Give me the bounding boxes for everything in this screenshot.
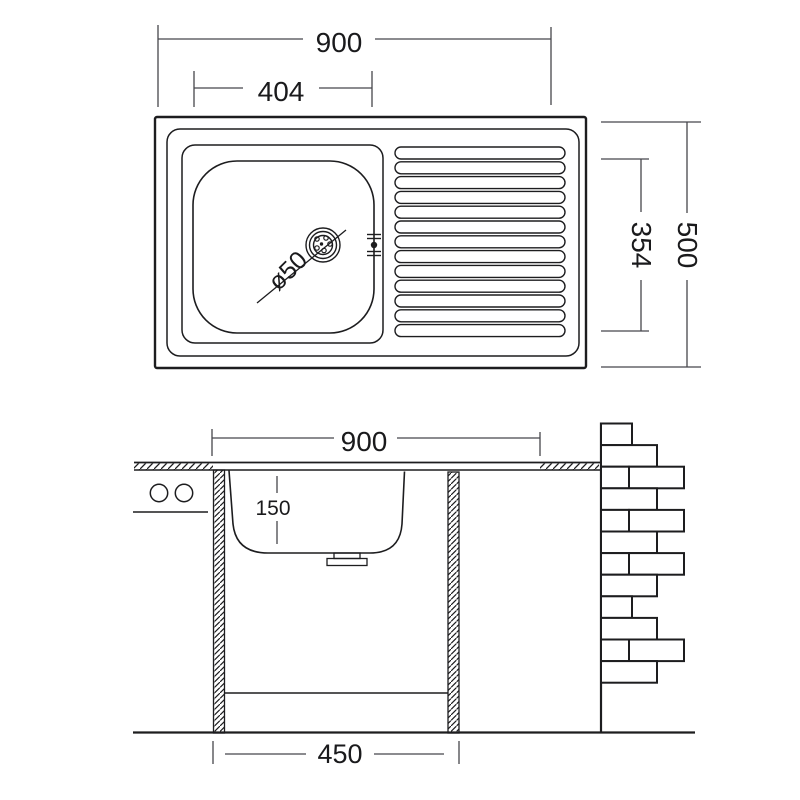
drain-outer-circle (306, 228, 340, 262)
drain (306, 228, 340, 262)
drainboard-ridge (395, 162, 565, 174)
cabinet-wall-left (214, 470, 225, 733)
drainboard-ridge (395, 147, 565, 159)
brick (601, 661, 657, 683)
drainboard-ridge (395, 177, 565, 189)
dim-total-width-bottom: 900 (212, 426, 540, 457)
dim-label-total-depth: 500 (672, 222, 703, 269)
drain-fitting-flange (327, 559, 367, 566)
drain-fitting-neck (334, 553, 360, 559)
drainboard-ridge (395, 325, 565, 337)
bowl-inner (193, 161, 374, 333)
dim-total-width-top: 900 (158, 25, 551, 107)
brick (601, 445, 657, 467)
drain-center-dot (320, 242, 323, 245)
brick (601, 596, 632, 618)
drainboard-ridge (395, 236, 565, 248)
drainboard-ridge (395, 295, 565, 307)
brick (629, 640, 684, 662)
dim-bowl-depth-right: 354 (601, 159, 657, 331)
dim-label-bowl-width: 404 (258, 76, 305, 107)
brick-wall-bricks (601, 424, 684, 683)
drainboard-ridge (395, 265, 565, 277)
countertop-hatch-right (540, 464, 599, 471)
bowl-flange (182, 145, 383, 343)
brick (629, 510, 684, 532)
side-knob-circle (150, 484, 167, 501)
brick (601, 618, 657, 640)
drain-strainer (314, 236, 333, 255)
brick (629, 467, 684, 489)
drawing-canvas: ø50 900 404 500 (0, 0, 800, 800)
overflow-dot (371, 242, 377, 248)
dim-label-total-width-bottom: 900 (341, 426, 388, 457)
top-view: ø50 (155, 117, 586, 368)
dim-bowl-depth-section: 150 (255, 476, 290, 544)
brick (601, 488, 657, 510)
brick (601, 553, 629, 575)
drainboard-ridges (395, 147, 565, 337)
drainboard-ridge (395, 191, 565, 203)
drain-hole (315, 246, 319, 250)
brick (601, 575, 657, 597)
drainboard-ridge (395, 251, 565, 263)
drainboard-ridge (395, 221, 565, 233)
drainboard-ridge (395, 206, 565, 218)
brick (601, 467, 629, 489)
side-knob-circle (175, 484, 192, 501)
section-view (133, 423, 695, 734)
countertop-hatch-left (134, 464, 213, 471)
brick (629, 553, 684, 575)
drainboard-ridge (395, 310, 565, 322)
brick (601, 640, 629, 662)
dim-label-total-width-top: 900 (316, 27, 363, 58)
dim-label-bowl-depth-section: 150 (255, 497, 290, 520)
drainboard-ridge (395, 280, 565, 292)
dim-label-bowl-depth: 354 (626, 222, 657, 269)
brick (601, 532, 657, 554)
dim-bowl-width-top: 404 (194, 71, 372, 107)
brick (601, 510, 629, 532)
drain-diameter-label: ø50 (263, 246, 313, 296)
brick (601, 424, 632, 446)
cabinet-wall-right (448, 472, 459, 733)
dim-label-cabinet-width: 450 (317, 739, 362, 769)
sink-drawing: ø50 900 404 500 (0, 0, 800, 800)
dim-cabinet-width: 450 (213, 739, 459, 769)
